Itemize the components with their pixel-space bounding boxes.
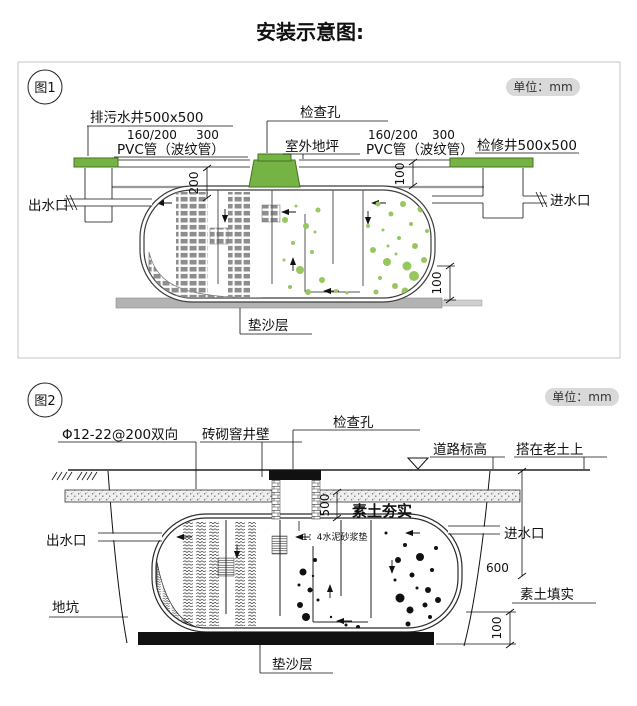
well-shaft-fill xyxy=(85,168,112,222)
dim-100-top-label: 100 xyxy=(393,163,407,186)
outlet-label-1: 出水口 xyxy=(28,198,69,214)
figure-1-tag: 图1 xyxy=(28,70,62,104)
elevation-marker-icon xyxy=(408,458,428,469)
brick-wall-label: 砖砌窨井壁 xyxy=(202,426,270,443)
rebar-label: Φ12-22@200双向 xyxy=(62,427,178,443)
pipe-dim-left-b: 300 xyxy=(196,128,219,142)
media-column-a2 xyxy=(182,522,220,626)
outlet-label-2: 出水口 xyxy=(46,533,87,549)
inlet-pipe-2 xyxy=(448,526,500,534)
outlet-pipe-2 xyxy=(98,533,162,541)
media-column-a1 xyxy=(176,192,208,298)
figure-1-tag-label: 图1 xyxy=(34,81,55,96)
inspection-hole-label-1: 检查孔 xyxy=(300,105,341,121)
inspection-hole-leader-2 xyxy=(293,430,420,469)
soil-backfill-label: 素土填实 xyxy=(520,587,574,603)
pvc-pipe-right-label: PVC管（波纹管） xyxy=(366,142,474,158)
inspection-hole-label-2: 检查孔 xyxy=(333,415,374,431)
pipe-dim-right-a: 160/200 xyxy=(368,128,418,142)
rebar-leader xyxy=(58,442,196,489)
dim-100-top: 100 xyxy=(393,159,417,189)
dim-600-label: 600 xyxy=(486,561,509,575)
sand-layer-label-1: 垫沙层 xyxy=(248,318,289,334)
figure-1: 图1 单位：mm xyxy=(18,62,620,358)
pipe-dim-left-a: 160/200 xyxy=(127,128,177,142)
well-shaft-fill-r xyxy=(484,168,522,218)
inlet-label-1: 进水口 xyxy=(550,193,591,209)
unit-badge-2: 单位：mm xyxy=(545,388,619,406)
installation-diagram-svg: 安装示意图: 图1 单位：mm xyxy=(0,0,637,706)
road-level-label: 道路标高 xyxy=(433,441,487,458)
unit-badge-2-label: 单位：mm xyxy=(552,389,611,404)
figure-2: 图2 单位：mm xyxy=(28,383,619,673)
pvc-pipe-left-label: PVC管（波纹管） xyxy=(117,142,225,158)
inlet-label-2: 进水口 xyxy=(504,526,545,542)
access-well-cap xyxy=(450,158,533,167)
dim-200-label: 200 xyxy=(187,172,201,195)
figure-2-tag: 图2 xyxy=(28,383,62,417)
inspection-riser xyxy=(249,160,300,187)
dim-100-fig2-label: 100 xyxy=(490,617,504,640)
inspection-riser-lid xyxy=(258,154,291,161)
road-level-leader xyxy=(430,457,505,469)
access-well xyxy=(483,168,523,218)
sand-base-bar-2 xyxy=(138,632,434,645)
unit-badge-1-label: 单位：mm xyxy=(513,79,572,94)
sand-layer-label-2: 垫沙层 xyxy=(272,657,313,673)
on-old-soil-leader xyxy=(514,457,607,469)
installation-schematic-page: 安装示意图: 图1 单位：mm xyxy=(0,0,637,706)
media-column-b1 xyxy=(228,192,250,298)
mortar-pad-label: 1：4水泥砂浆垫 xyxy=(302,531,367,543)
unit-badge-1: 单位：mm xyxy=(506,78,580,96)
on-old-soil-label: 搭在老土上 xyxy=(516,442,584,458)
compacted-soil-label: 素土夯实 xyxy=(352,502,412,520)
media-block-1a xyxy=(210,228,228,244)
ground-hatch-marks xyxy=(52,472,97,480)
figure-2-tag-label: 图2 xyxy=(34,394,55,409)
access-well-label: 检修井500x500 xyxy=(477,138,577,154)
page-title: 安装示意图: xyxy=(256,20,364,44)
dim-500-label: 500 xyxy=(318,494,332,517)
dim-100-bottom-label: 100 xyxy=(430,272,444,295)
pit-label: 地坑 xyxy=(52,600,79,616)
concrete-slab xyxy=(65,490,520,502)
sewage-well xyxy=(85,168,112,222)
shaft-cover xyxy=(269,470,321,480)
brick-wall-left xyxy=(272,480,280,519)
manhole-shaft xyxy=(269,470,321,519)
pipe-dim-right-b: 300 xyxy=(432,128,455,142)
dim-600: 600 xyxy=(486,468,526,579)
sewage-well-cap xyxy=(74,158,118,167)
sewage-well-label: 排污水井500x500 xyxy=(90,110,204,126)
media-block-1b xyxy=(262,205,280,222)
media-column-b2 xyxy=(234,522,256,626)
outdoor-ground-label: 室外地坪 xyxy=(285,138,339,155)
